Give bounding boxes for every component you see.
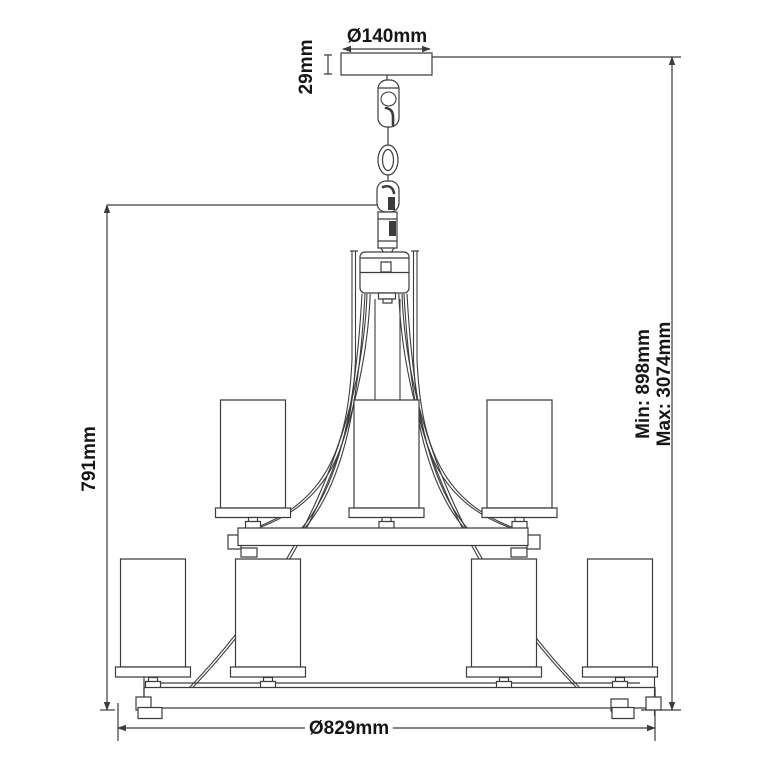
min-drop-label: Min: 898mm xyxy=(634,329,654,439)
upper-tier-shades xyxy=(216,400,558,529)
lower-tier-shades xyxy=(116,559,658,689)
upper-ring-bar xyxy=(228,528,540,557)
canopy-diameter-label: Ø140mm xyxy=(347,27,427,47)
upper-shade-right xyxy=(482,400,557,529)
lower-shade-mid-right xyxy=(467,559,542,689)
max-drop-label: Max: 3074mm xyxy=(655,322,675,447)
fixture-height-label: 791mm xyxy=(80,426,100,492)
lower-shade-far-left xyxy=(116,559,191,689)
canopy-height-label: 29mm xyxy=(297,40,317,95)
ceiling-canopy xyxy=(341,53,432,75)
dimension-diagram: Ø140mm 29mm 791mm Min: 898mm Max: 3074mm… xyxy=(0,0,768,768)
upper-shade-left xyxy=(216,400,291,529)
suspension-chain xyxy=(377,75,399,253)
lower-shade-mid-left xyxy=(231,559,306,689)
upper-shade-center xyxy=(349,400,424,529)
fixture-diameter-label: Ø829mm xyxy=(305,719,393,739)
lower-shade-far-right xyxy=(583,559,658,689)
